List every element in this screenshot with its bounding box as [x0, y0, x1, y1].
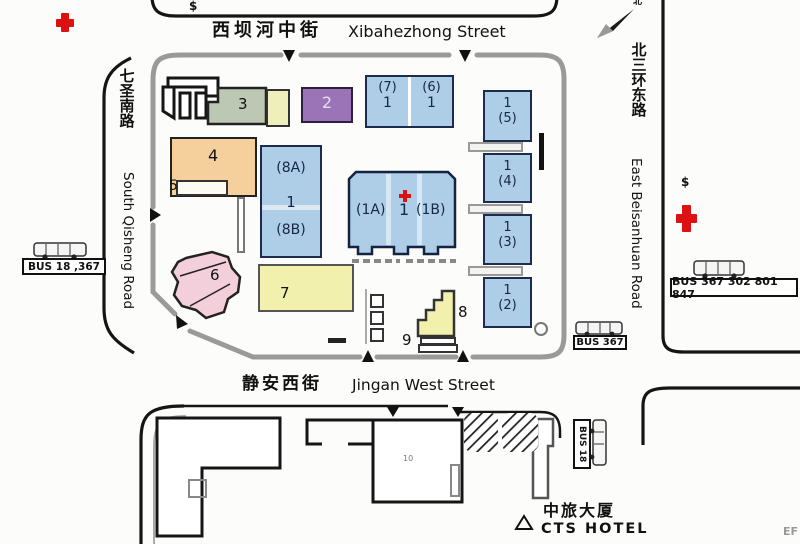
building-7-label: 7 — [280, 285, 350, 302]
building-5-label: 5 — [169, 179, 178, 194]
hotel-name-zh: 中旅大厦 — [543, 502, 615, 520]
planting-area-1 — [464, 413, 498, 452]
wall-bar — [539, 133, 544, 170]
cluster-bar-2 — [196, 93, 206, 118]
gate-arrow-top-1 — [283, 50, 295, 62]
building-7-cell-num: 1 — [367, 95, 408, 111]
west-road-name-en: South Qisheng Road — [120, 172, 135, 357]
building-8-label: 8 — [458, 304, 468, 321]
hotel-triangle-marker — [516, 516, 532, 529]
bank-symbol-top: $ — [189, 0, 197, 13]
west-road-name-zh: 七圣南路 — [118, 68, 135, 163]
building-2: 2 — [301, 87, 353, 123]
compass-north-label: 北 — [633, 0, 642, 8]
building-10-label: 10 — [403, 455, 413, 464]
corner-mark: EF — [783, 526, 798, 538]
building-1a-label: (1A) — [356, 203, 390, 218]
tower-1-2-sub: (2) — [485, 298, 530, 313]
building-8-shape — [418, 291, 454, 336]
gate-arrow-bottom-1 — [362, 350, 374, 362]
tower-1-4-num: 1 — [485, 159, 530, 174]
building-6-cell: (6) 1 — [411, 77, 452, 126]
building-8ab: (8A) 1 (8B) — [260, 145, 322, 258]
bus-stop-inner: BUS 367 — [573, 335, 627, 350]
tower-1-4: 1 (4) — [483, 153, 532, 203]
gate-arrow-south-1 — [387, 407, 399, 417]
tower-1-2: 1 (2) — [483, 277, 532, 328]
gate-arrow-bottom-2 — [457, 350, 469, 362]
north-street-name-zh: 西坝河中街 — [212, 21, 322, 41]
small-dark-bar — [328, 338, 346, 343]
tower-1-5: 1 (5) — [483, 90, 532, 142]
hotel-name-en: CTS HOTEL — [541, 522, 649, 538]
bus-stop-west: BUS 18 ,367 — [22, 258, 106, 275]
tower-1-3-num: 1 — [485, 220, 530, 235]
south-street-name-en: Jingan West Street — [352, 377, 495, 394]
building-6-cell-num: 1 — [411, 95, 452, 111]
planting-area-2 — [502, 413, 538, 452]
building-3-annex — [266, 89, 290, 127]
corridor — [237, 197, 245, 253]
campus-map: 2 (7) 1 (6) 1 1 (5) 1 (4) 1 (3) 1 (2) — [0, 0, 800, 544]
building-1-label: 1 — [399, 201, 409, 219]
kiosk-squares — [371, 295, 383, 341]
building-7-cell: (7) 1 — [367, 77, 411, 126]
building-6-cell-code: (6) — [411, 80, 452, 95]
building-8ab-top-label: (8A) — [262, 161, 320, 176]
gate-arrow-left-lower — [176, 315, 188, 329]
red-cross-west — [56, 13, 74, 32]
bus-icon-south — [590, 420, 606, 465]
east-road-lower-edge — [643, 388, 800, 445]
east-road-name-zh: 北三环东路 — [630, 42, 647, 142]
east-road-name-en: East Beisanhuan Road — [628, 158, 643, 368]
tower-1-3-sub: (3) — [485, 235, 530, 250]
wall-bottom-left — [190, 331, 360, 357]
tower-1-2-num: 1 — [485, 283, 530, 298]
tower-connector-2 — [468, 204, 523, 214]
cluster-bar-1 — [180, 93, 190, 118]
structure-9-label: 9 — [402, 332, 412, 349]
tower-1-5-sub: (5) — [485, 111, 530, 126]
building-5-wing — [176, 180, 228, 196]
wall-left-lower — [153, 225, 175, 314]
circle-structure — [535, 323, 547, 335]
south-building-10 — [373, 420, 462, 502]
building-6-label: 6 — [210, 267, 220, 284]
tower-1-5-num: 1 — [485, 96, 530, 111]
bus-stop-east: BUS 367 302 801 847 — [670, 278, 798, 297]
tower-connector-1 — [468, 142, 523, 152]
south-building-mid — [307, 420, 373, 444]
building-7-6: (7) 1 (6) 1 — [365, 75, 454, 128]
building-1b-label: (1B) — [416, 203, 452, 218]
tower-1-4-sub: (4) — [485, 174, 530, 189]
gate-arrow-top-2 — [459, 50, 471, 62]
bus-stop-south: BUS 18 — [573, 419, 591, 469]
south-building-10-annex — [451, 465, 459, 496]
bank-symbol-right: $ — [681, 176, 689, 189]
building-8ab-num-label: 1 — [262, 194, 320, 211]
building-8ab-bottom-label: (8B) — [262, 223, 320, 238]
cluster-left-piece — [163, 87, 174, 118]
north-block-border — [152, 0, 557, 16]
building-3-label: 3 — [238, 96, 248, 113]
tower-1-3: 1 (3) — [483, 214, 532, 265]
building-2-label: 2 — [303, 94, 351, 112]
red-cross-east — [676, 205, 697, 232]
south-street-name-zh: 静安西街 — [242, 375, 322, 394]
south-building-L — [157, 418, 280, 536]
building-6-shape — [172, 252, 240, 318]
building-7-cell-code: (7) — [367, 80, 408, 95]
structure-9-steps — [419, 338, 457, 352]
tower-connector-3 — [468, 266, 523, 276]
compass-arrow — [597, 9, 634, 38]
building-4-label: 4 — [208, 147, 218, 165]
gate-arrow-left — [150, 208, 161, 222]
north-street-name-en: Xibahezhong Street — [348, 23, 506, 41]
